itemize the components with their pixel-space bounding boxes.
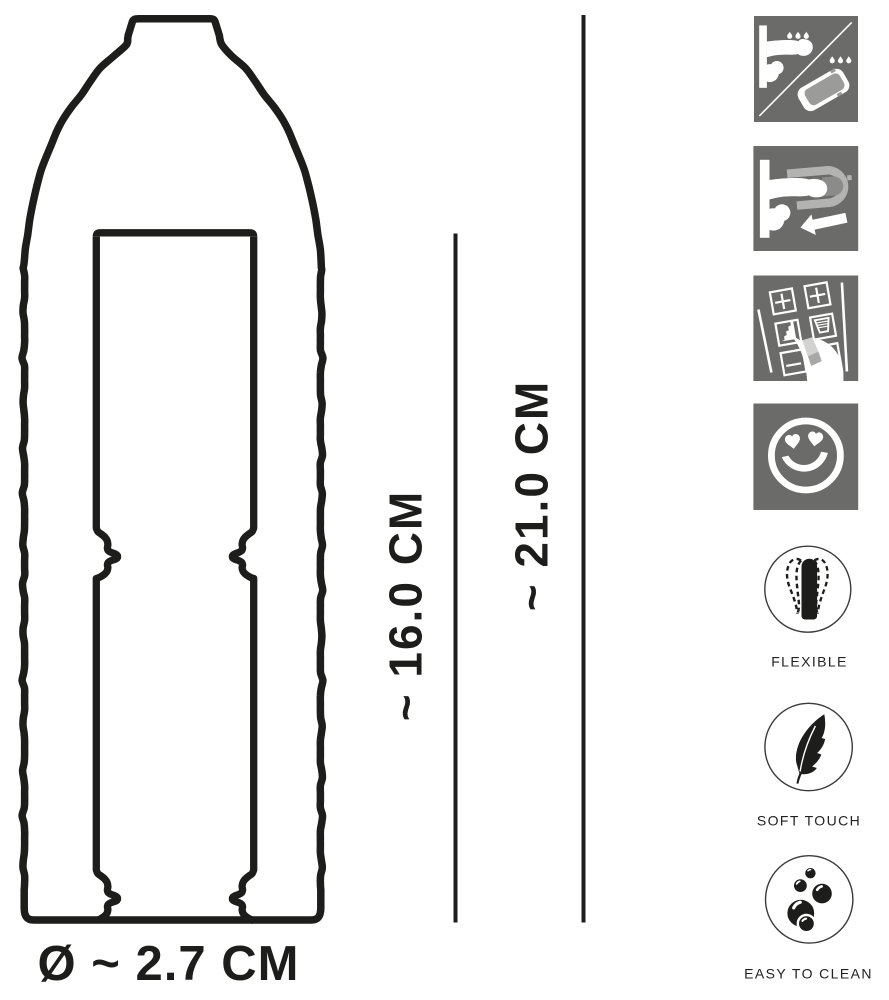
svg-text:~ 16.0 CM: ~ 16.0 CM [380,490,432,722]
svg-text:EASY TO CLEAN: EASY TO CLEAN [744,966,873,982]
svg-text:~ 21.0 CM: ~ 21.0 CM [506,380,558,612]
svg-text:Ø ~ 2.7 CM: Ø ~ 2.7 CM [38,937,300,991]
svg-text:SOFT TOUCH: SOFT TOUCH [757,813,861,829]
svg-text:FLEXIBLE: FLEXIBLE [771,654,848,670]
